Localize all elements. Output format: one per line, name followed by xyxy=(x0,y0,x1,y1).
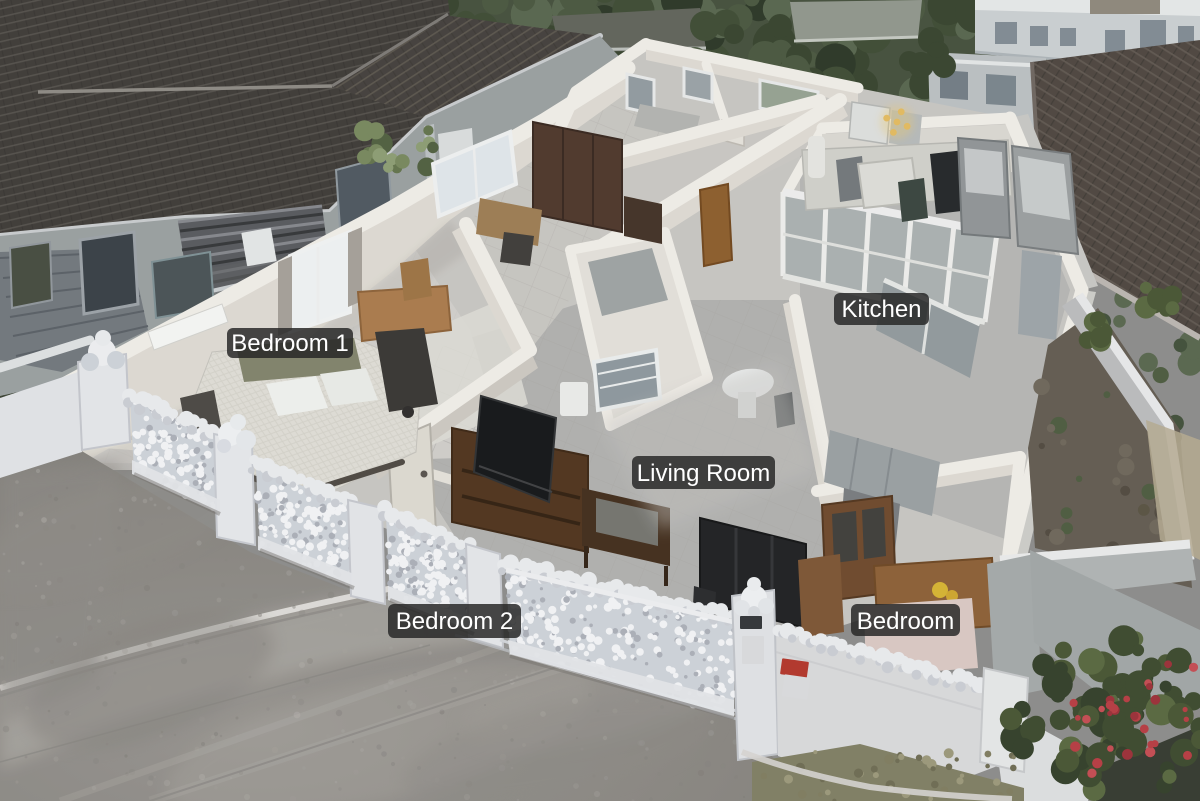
svg-text:Bedroom 2: Bedroom 2 xyxy=(396,608,513,635)
svg-text:Living Room: Living Room xyxy=(637,460,770,487)
svg-text:Bedroom: Bedroom xyxy=(857,608,954,635)
svg-text:Kitchen: Kitchen xyxy=(841,296,921,323)
svg-text:Bedroom 1: Bedroom 1 xyxy=(231,330,348,357)
